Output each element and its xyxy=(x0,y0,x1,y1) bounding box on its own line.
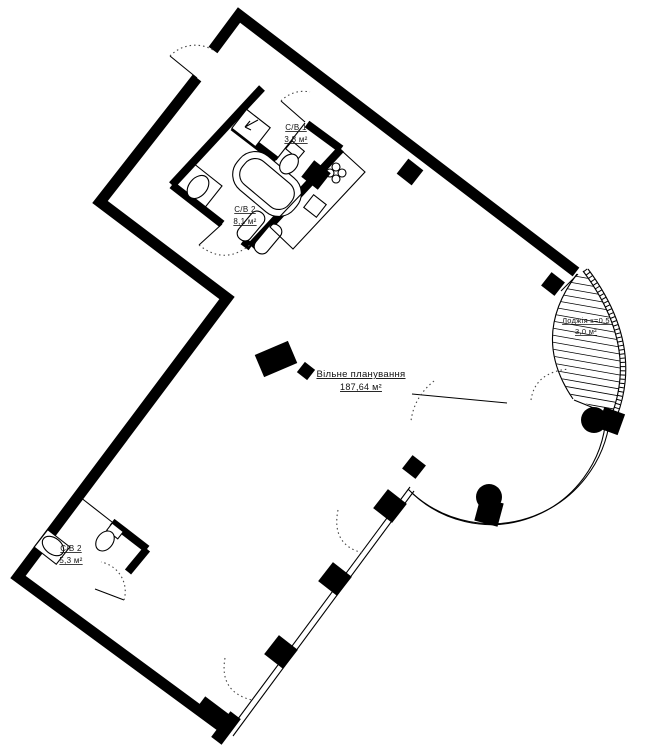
column-wall-upper xyxy=(397,159,424,186)
facade-glass-line-1 xyxy=(229,487,410,731)
facade-column-1 xyxy=(264,635,298,669)
cb2-upper-area: 8,1 м² xyxy=(233,217,256,226)
room-labels: Вільне планування 187,64 м² С/В 1 3,8 м²… xyxy=(59,123,610,565)
facade-column-2 xyxy=(318,562,352,596)
curved-glass-outer xyxy=(412,418,610,524)
column-center-large xyxy=(255,341,298,377)
cb1-upper-name: С/В 1 xyxy=(285,123,307,132)
free-planning-area: 187,64 м² xyxy=(340,382,382,392)
loggia-door-swing xyxy=(531,369,569,400)
column-wall-loggia xyxy=(541,272,565,296)
cb2-door-leaf xyxy=(199,224,222,245)
column-glazing-corner xyxy=(402,455,426,479)
cb1-door-leaf xyxy=(281,101,305,122)
entrance-door xyxy=(170,45,213,78)
lower-bathroom xyxy=(34,497,147,600)
cb2-lower-name: С/В 2 xyxy=(60,544,82,553)
lower-bath-door-swing xyxy=(101,562,125,600)
threshold-door-swing xyxy=(411,381,434,421)
cb1-door-swing-arc xyxy=(281,91,310,101)
loggia-threshold-line xyxy=(412,394,507,403)
glazed-facade xyxy=(224,487,414,736)
facade-glass-line-2 xyxy=(233,491,414,736)
facade-door-swing-2 xyxy=(337,510,363,553)
loggia-hatch xyxy=(518,266,648,436)
lower-bath-door-leaf xyxy=(95,589,124,600)
kitchen-sink xyxy=(304,195,326,217)
loggia-area: 3,0 м² xyxy=(575,327,597,336)
floor-plan-page: Вільне планування 187,64 м² С/В 1 3,8 м²… xyxy=(0,0,650,752)
cb1-upper-area: 3,8 м² xyxy=(284,135,307,144)
loggia-name: Лоджія к=0,5 xyxy=(562,316,610,325)
cb2-upper-name: С/В 2 xyxy=(234,205,256,214)
lower-bath-ne-wall-thin xyxy=(80,497,112,522)
block-ne-wall xyxy=(307,124,341,149)
entrance-door-swing-arc xyxy=(170,45,213,56)
floor-plan-drawing: Вільне планування 187,64 м² С/В 1 3,8 м²… xyxy=(0,0,650,752)
facade-door-swing-1 xyxy=(224,658,252,700)
lower-bath-se-wall xyxy=(128,549,147,572)
structural-columns xyxy=(255,159,565,479)
column-center-small xyxy=(297,362,315,380)
curved-glass-inner xyxy=(408,416,606,525)
entrance-door-leaf xyxy=(170,56,197,78)
facade-column-3 xyxy=(373,489,407,523)
loggia xyxy=(518,266,648,436)
curved-glazing xyxy=(408,381,625,527)
free-planning-label: Вільне планування xyxy=(316,369,405,380)
cb2-lower-area: 5,3 м² xyxy=(59,556,82,565)
